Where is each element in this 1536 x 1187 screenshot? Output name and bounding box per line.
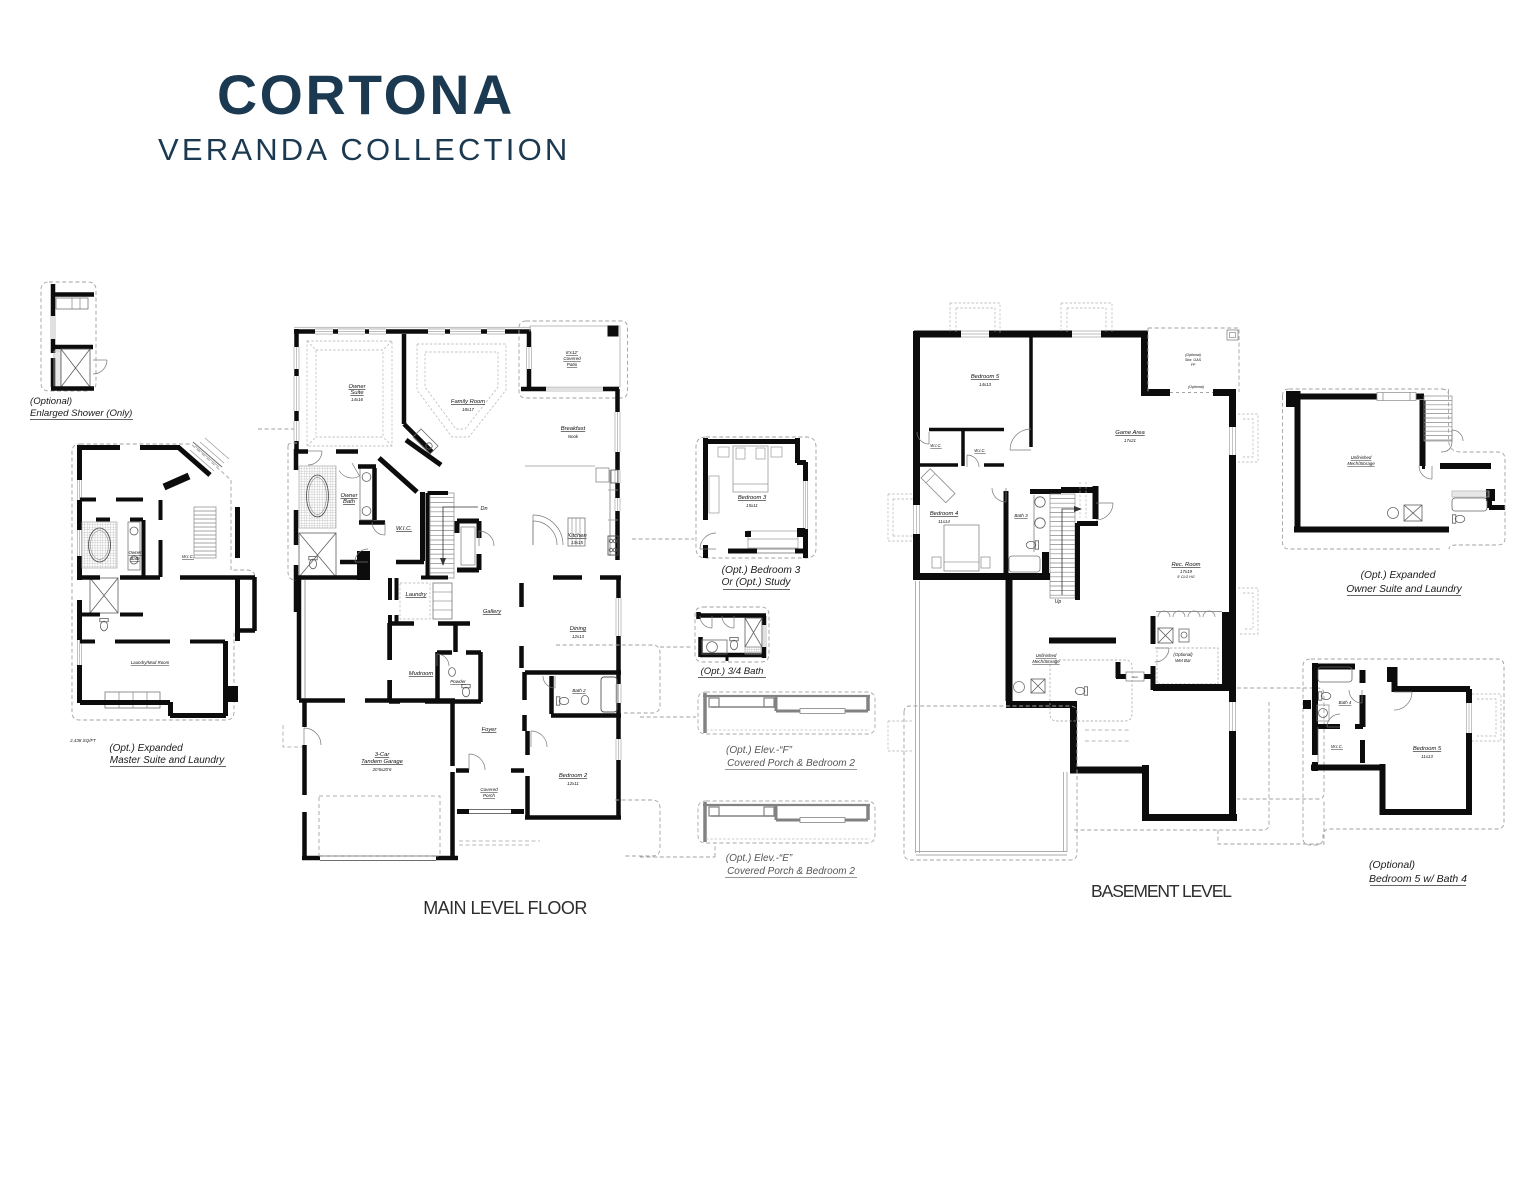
svg-text:Kitchen: Kitchen: [567, 533, 586, 539]
svg-text:Mudroom: Mudroom: [409, 671, 434, 677]
svg-text:Patio: Patio: [567, 362, 578, 367]
svg-text:W.I.C.: W.I.C.: [930, 443, 941, 448]
svg-text:13x15: 13x15: [571, 540, 584, 545]
svg-text:(Optional): (Optional): [30, 396, 72, 407]
svg-text:9’ CLG HG: 9’ CLG HG: [1177, 575, 1195, 579]
svg-text:20’6x20’6: 20’6x20’6: [372, 767, 392, 772]
svg-text:Bath 2: Bath 2: [572, 688, 586, 693]
svg-text:Bath 4: Bath 4: [1339, 700, 1352, 705]
svg-text:BASEMENT LEVEL: BASEMENT LEVEL: [1091, 881, 1232, 901]
svg-text:(Optional): (Optional): [1185, 353, 1201, 357]
svg-text:17x19: 17x19: [1180, 569, 1193, 574]
svg-text:14x16: 14x16: [351, 397, 364, 402]
svg-text:12x13: 12x13: [572, 634, 585, 639]
svg-text:W.I.C.: W.I.C.: [974, 448, 985, 453]
svg-text:11x14: 11x14: [938, 519, 950, 524]
svg-text:11x13: 11x13: [1421, 754, 1433, 759]
svg-text:Bedroom 3: Bedroom 3: [738, 495, 767, 501]
svg-text:Bedroom 5: Bedroom 5: [1413, 746, 1442, 752]
svg-text:Bath: Bath: [343, 499, 355, 505]
svg-text:W.I.C.: W.I.C.: [1331, 744, 1343, 749]
svg-text:2,438 SQ/FT: 2,438 SQ/FT: [69, 738, 97, 743]
svg-text:Covered Porch & Bedroom 2: Covered Porch & Bedroom 2: [727, 758, 855, 769]
svg-text:Suite: Suite: [350, 390, 364, 396]
svg-text:Bedroom 2: Bedroom 2: [559, 773, 588, 779]
svg-text:Foyer: Foyer: [482, 727, 498, 733]
svg-text:17x21: 17x21: [1124, 438, 1137, 443]
svg-text:3-Car: 3-Car: [375, 752, 391, 758]
svg-text:(Opt.) Elev.-“E”: (Opt.) Elev.-“E”: [726, 853, 793, 864]
svg-text:Bedroom 5 w/ Bath 4: Bedroom 5 w/ Bath 4: [1369, 873, 1467, 885]
svg-text:Covered Porch & Bedroom 2: Covered Porch & Bedroom 2: [727, 866, 855, 877]
svg-text:Owner Suite and Laundry: Owner Suite and Laundry: [1346, 584, 1462, 595]
svg-text:W.I.C.: W.I.C.: [182, 554, 194, 559]
svg-text:Dn: Dn: [480, 506, 487, 512]
svg-text:14x13: 14x13: [979, 382, 992, 387]
svg-text:Mech/Storage: Mech/Storage: [1347, 461, 1375, 466]
svg-text:Bath: Bath: [130, 556, 140, 561]
svg-text:Bedroom 4: Bedroom 4: [930, 511, 958, 517]
svg-text:18x17: 18x17: [462, 407, 475, 412]
svg-text:W.I.C.: W.I.C.: [396, 526, 412, 532]
svg-text:Bath 3: Bath 3: [1014, 513, 1028, 518]
svg-text:(Opt.) Elev.-“F”: (Opt.) Elev.-“F”: [726, 745, 793, 756]
svg-text:Nook: Nook: [568, 434, 579, 439]
svg-text:Dining: Dining: [570, 626, 587, 632]
svg-text:door: door: [1132, 675, 1139, 679]
svg-text:Wet Bar: Wet Bar: [1175, 658, 1191, 663]
svg-text:Master Suite and Laundry: Master Suite and Laundry: [110, 755, 226, 766]
svg-text:(Optional): (Optional): [1188, 385, 1204, 389]
svg-text:Unfinished: Unfinished: [1036, 653, 1057, 658]
svg-text:Tandem Garage: Tandem Garage: [361, 759, 403, 765]
svg-text:Enlarged Shower (Only): Enlarged Shower (Only): [30, 408, 132, 419]
svg-text:Rec. Room: Rec. Room: [1172, 562, 1201, 568]
svg-text:Covered: Covered: [563, 356, 581, 361]
svg-text:Laundry/Mud Room: Laundry/Mud Room: [131, 660, 170, 665]
svg-text:Breakfast: Breakfast: [561, 426, 586, 432]
svg-text:Game Area: Game Area: [1115, 430, 1145, 436]
svg-text:Laundry: Laundry: [406, 592, 428, 598]
svg-text:Unfinished: Unfinished: [1351, 455, 1372, 460]
svg-text:CORTONA: CORTONA: [217, 64, 515, 126]
svg-text:15x11: 15x11: [746, 503, 758, 508]
svg-text:MAIN LEVEL FLOOR: MAIN LEVEL FLOOR: [423, 898, 587, 918]
svg-text:(Opt.) Expanded: (Opt.) Expanded: [109, 743, 183, 754]
svg-text:FP: FP: [1191, 363, 1196, 367]
svg-text:Bedroom 5: Bedroom 5: [971, 374, 1000, 380]
svg-text:Gallery: Gallery: [483, 609, 502, 615]
svg-text:Up: Up: [1055, 599, 1062, 605]
svg-text:Owner: Owner: [129, 550, 142, 555]
svg-text:(Optional): (Optional): [1369, 859, 1415, 871]
svg-text:(Opt.) 3/4 Bath: (Opt.) 3/4 Bath: [701, 666, 764, 677]
svg-text:(Optional): (Optional): [1173, 652, 1193, 657]
svg-text:Porch: Porch: [483, 793, 495, 798]
svg-text:8’x12’: 8’x12’: [566, 350, 579, 355]
svg-text:(Opt.) Bedroom 3: (Opt.) Bedroom 3: [722, 565, 801, 576]
svg-text:Covered: Covered: [480, 787, 498, 792]
svg-text:VERANDA COLLECTION: VERANDA COLLECTION: [158, 132, 570, 167]
svg-text:(Opt.) Expanded: (Opt.) Expanded: [1361, 570, 1436, 581]
svg-text:Stor. GAS: Stor. GAS: [1185, 358, 1202, 362]
svg-text:Family Room: Family Room: [451, 399, 485, 405]
svg-text:Powder: Powder: [450, 679, 466, 684]
svg-text:Or (Opt.) Study: Or (Opt.) Study: [721, 577, 791, 588]
svg-text:12x11: 12x11: [567, 781, 579, 786]
